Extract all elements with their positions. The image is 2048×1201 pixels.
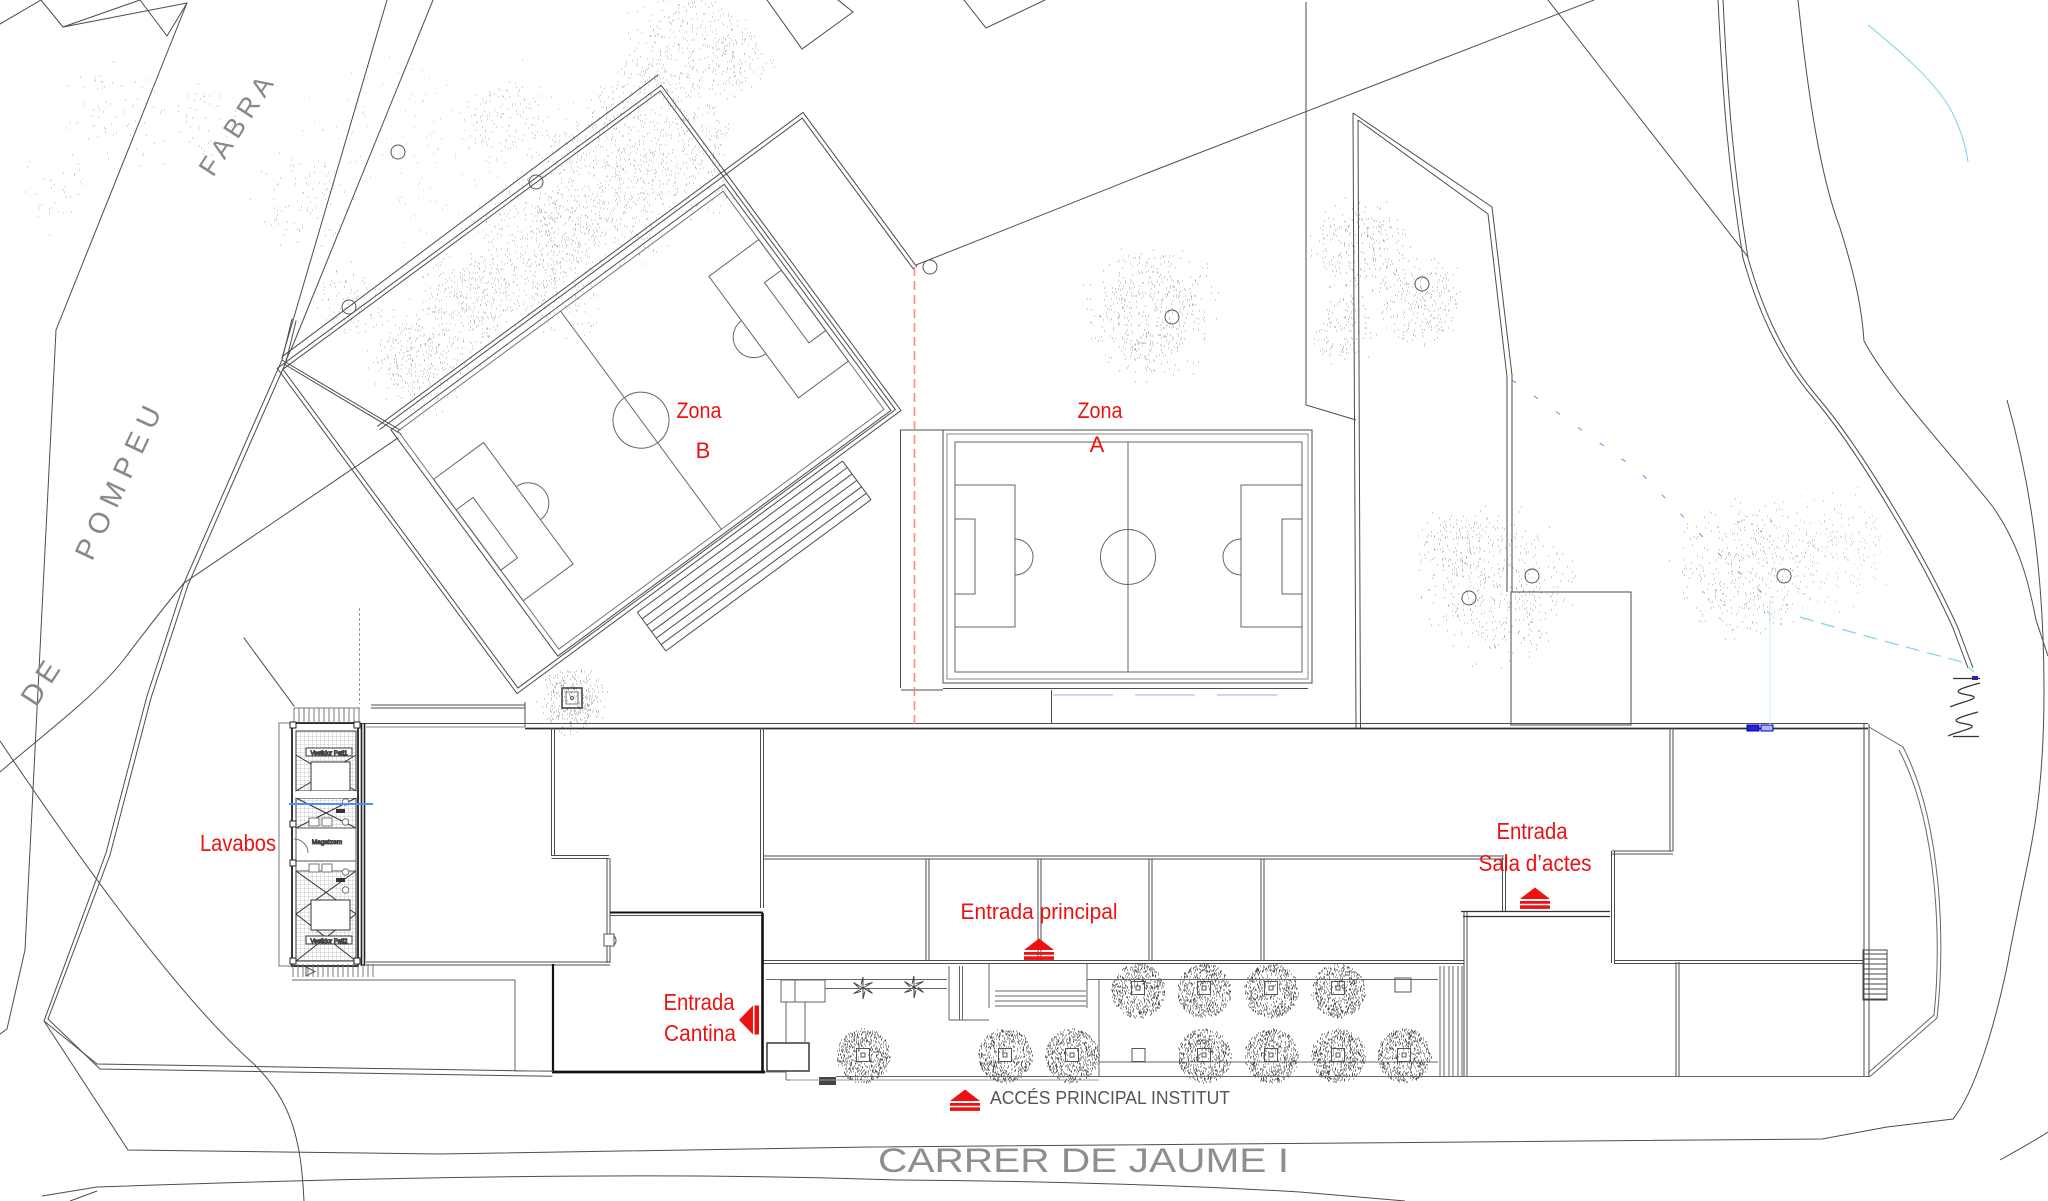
svg-text:Vestidor Pati2: Vestidor Pati2	[310, 939, 348, 945]
svg-text:Zona: Zona	[1078, 398, 1124, 423]
svg-text:Entrada: Entrada	[1497, 818, 1568, 844]
svg-text:Entrada principal: Entrada principal	[961, 899, 1118, 924]
svg-text:A: A	[1090, 432, 1105, 457]
svg-text:B: B	[696, 438, 711, 463]
svg-text:CARRER DE JAUME I: CARRER DE JAUME I	[878, 1142, 1289, 1180]
svg-text:ACCÉS PRINCIPAL INSTITUT: ACCÉS PRINCIPAL INSTITUT	[990, 1087, 1230, 1108]
svg-text:Cantina: Cantina	[664, 1020, 736, 1046]
svg-text:Lavabos: Lavabos	[200, 830, 276, 856]
svg-text:Magatzem: Magatzem	[312, 839, 342, 846]
svg-text:Vestidor Pati1: Vestidor Pati1	[310, 751, 348, 757]
svg-text:Zona: Zona	[677, 398, 723, 423]
svg-text:Entrada: Entrada	[664, 989, 735, 1015]
svg-text:Sala d’actes: Sala d’actes	[1479, 850, 1592, 876]
